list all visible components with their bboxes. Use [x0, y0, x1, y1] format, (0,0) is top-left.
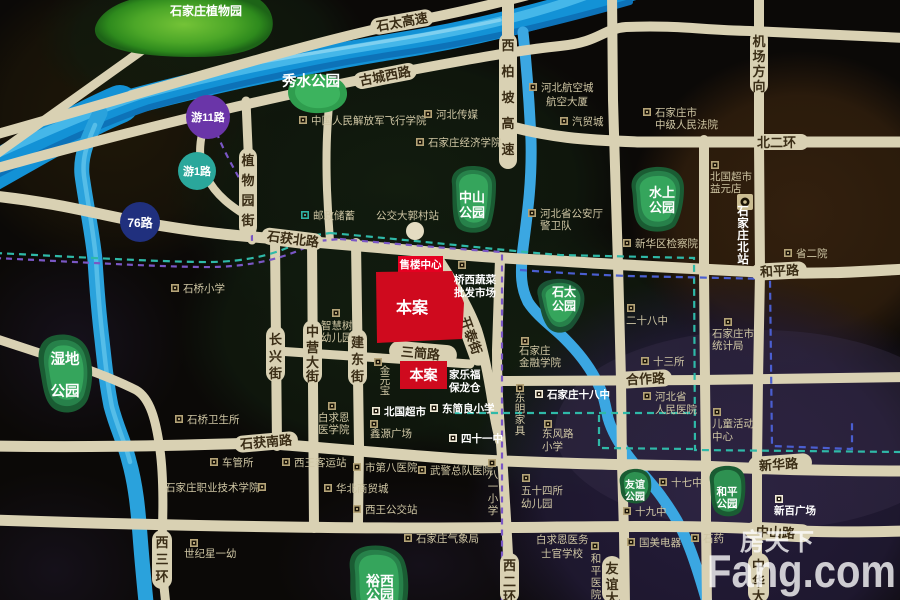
svg-text:湿地: 湿地 [51, 350, 80, 368]
svg-text:东简良小学: 东简良小学 [442, 402, 495, 415]
svg-text:植: 植 [240, 153, 254, 168]
svg-text:平: 平 [591, 565, 602, 577]
svg-text:航空大厦: 航空大厦 [546, 95, 588, 108]
svg-text:西王客运站: 西王客运站 [294, 456, 347, 469]
svg-text:76路: 76路 [127, 215, 153, 230]
svg-text:白求恩医务: 白求恩医务 [536, 533, 589, 546]
svg-text:十九中: 十九中 [635, 505, 667, 518]
svg-text:车管所: 车管所 [222, 456, 254, 469]
svg-text:场: 场 [752, 49, 765, 64]
svg-text:本案: 本案 [410, 367, 439, 383]
svg-text:营: 营 [306, 340, 319, 355]
svg-text:河北传媒: 河北传媒 [436, 108, 478, 121]
svg-text:桥西蔬菜: 桥西蔬菜 [454, 273, 496, 286]
svg-text:石家庄市: 石家庄市 [712, 327, 754, 340]
svg-text:Fang.com: Fang.com [707, 545, 896, 597]
svg-text:建: 建 [351, 335, 364, 350]
svg-text:新华路: 新华路 [759, 456, 800, 474]
svg-text:环: 环 [503, 589, 516, 600]
svg-text:中山: 中山 [459, 190, 485, 205]
svg-text:智慧树: 智慧树 [321, 319, 353, 332]
svg-text:合作路: 合作路 [626, 370, 667, 387]
svg-text:北国超市: 北国超市 [384, 405, 426, 418]
svg-text:速: 速 [501, 142, 514, 157]
svg-text:石家庄经济学院: 石家庄经济学院 [428, 136, 502, 149]
svg-text:三: 三 [155, 552, 168, 567]
svg-text:兴: 兴 [269, 349, 282, 364]
svg-text:中国人民解放军飞行学院: 中国人民解放军飞行学院 [311, 114, 427, 127]
svg-text:庄: 庄 [737, 228, 749, 242]
svg-text:谊: 谊 [605, 577, 618, 592]
svg-text:西: 西 [503, 558, 516, 573]
svg-text:石药: 石药 [703, 533, 724, 545]
svg-text:街: 街 [350, 369, 364, 384]
svg-text:方: 方 [752, 64, 765, 79]
svg-text:公园: 公园 [459, 205, 485, 220]
svg-text:士官学校: 士官学校 [541, 547, 583, 560]
svg-text:公园: 公园 [649, 200, 675, 215]
svg-text:统计局: 统计局 [712, 339, 744, 352]
svg-text:八: 八 [488, 469, 499, 481]
svg-text:街: 街 [305, 369, 319, 384]
svg-text:街: 街 [268, 366, 282, 381]
svg-text:公交大郭村站: 公交大郭村站 [376, 209, 439, 222]
svg-text:华北商贸城: 华北商贸城 [336, 482, 389, 495]
svg-text:石: 石 [736, 205, 749, 218]
svg-text:本案: 本案 [396, 298, 429, 317]
svg-text:保龙仓: 保龙仓 [448, 381, 481, 394]
svg-text:世纪星一幼: 世纪星一幼 [184, 547, 237, 560]
svg-text:西王公交站: 西王公交站 [365, 503, 418, 516]
svg-text:长: 长 [269, 332, 283, 347]
svg-text:五十四所: 五十四所 [521, 484, 563, 497]
svg-text:石家庄职业技术学院: 石家庄职业技术学院 [165, 481, 260, 494]
svg-text:大: 大 [605, 591, 618, 600]
svg-text:河北省公安厅: 河北省公安厅 [540, 207, 603, 220]
svg-text:游11路: 游11路 [191, 110, 226, 124]
svg-text:批发市场: 批发市场 [454, 286, 496, 299]
svg-text:四十一中: 四十一中 [461, 432, 503, 445]
svg-text:公园: 公园 [366, 587, 394, 600]
svg-text:西: 西 [155, 535, 168, 550]
svg-text:儿童活动: 儿童活动 [712, 417, 754, 430]
svg-text:金融学院: 金融学院 [519, 356, 561, 369]
svg-text:河北航空城: 河北航空城 [541, 81, 594, 94]
svg-text:石桥卫生所: 石桥卫生所 [187, 413, 240, 426]
svg-text:友: 友 [605, 561, 618, 576]
svg-text:省二院: 省二院 [796, 247, 828, 260]
svg-text:幼儿园: 幼儿园 [321, 331, 353, 344]
svg-text:石家庄市: 石家庄市 [655, 106, 697, 119]
svg-text:石家庄植物园: 石家庄植物园 [169, 3, 242, 18]
svg-text:公园: 公园 [552, 299, 576, 313]
svg-text:白求恩: 白求恩 [318, 411, 350, 424]
svg-text:人民医院: 人民医院 [655, 403, 697, 416]
svg-text:游1路: 游1路 [183, 164, 212, 178]
svg-text:医学院: 医学院 [318, 423, 350, 436]
svg-text:家乐福: 家乐福 [449, 368, 481, 381]
svg-text:中: 中 [306, 324, 319, 339]
svg-text:公园: 公园 [51, 383, 80, 400]
svg-text:二: 二 [503, 574, 516, 589]
svg-text:新华区检察院: 新华区检察院 [635, 237, 698, 250]
svg-text:公园: 公园 [717, 498, 738, 510]
svg-text:水上: 水上 [649, 185, 675, 200]
svg-text:警卫队: 警卫队 [540, 219, 572, 232]
svg-text:西: 西 [501, 38, 514, 53]
svg-text:小学: 小学 [542, 440, 563, 453]
svg-text:新百广场: 新百广场 [774, 504, 816, 517]
svg-text:石家庄十八中: 石家庄十八中 [546, 388, 610, 401]
svg-text:东: 东 [351, 352, 364, 367]
svg-text:公园: 公园 [625, 491, 645, 503]
svg-text:石家庄: 石家庄 [519, 344, 551, 357]
svg-text:鑫源广场: 鑫源广场 [370, 427, 412, 440]
svg-text:石桥小学: 石桥小学 [183, 282, 225, 295]
svg-text:柏: 柏 [501, 64, 514, 79]
svg-text:二十八中: 二十八中 [626, 314, 668, 327]
svg-text:市第八医院: 市第八医院 [365, 461, 418, 474]
svg-text:售楼中心: 售楼中心 [400, 258, 442, 271]
svg-text:坡: 坡 [501, 90, 515, 105]
svg-text:武警总队医院: 武警总队医院 [430, 464, 493, 477]
svg-text:大: 大 [306, 355, 319, 370]
svg-text:北二环: 北二环 [757, 135, 796, 150]
svg-text:邮政储蓄: 邮政储蓄 [313, 209, 355, 222]
svg-text:园: 园 [241, 193, 254, 208]
svg-text:向: 向 [752, 79, 765, 94]
svg-text:和: 和 [591, 553, 602, 565]
svg-text:北: 北 [737, 240, 749, 254]
svg-text:物: 物 [241, 173, 254, 188]
svg-text:和平: 和平 [716, 485, 738, 498]
svg-text:十三所: 十三所 [653, 355, 685, 368]
svg-text:中心: 中心 [712, 430, 733, 443]
svg-text:站: 站 [737, 252, 749, 266]
svg-text:医: 医 [591, 577, 602, 589]
svg-text:国美电器: 国美电器 [639, 536, 681, 549]
svg-text:街: 街 [240, 213, 254, 228]
svg-text:和平路: 和平路 [760, 262, 801, 279]
svg-text:家: 家 [737, 216, 749, 230]
svg-text:宝: 宝 [380, 384, 391, 397]
svg-text:石太: 石太 [551, 284, 577, 299]
svg-text:益元店: 益元店 [710, 182, 742, 195]
svg-text:环: 环 [155, 569, 168, 584]
svg-text:院: 院 [591, 588, 602, 600]
svg-text:一: 一 [488, 481, 499, 493]
svg-text:石家庄气象局: 石家庄气象局 [416, 532, 479, 545]
svg-text:学: 学 [488, 504, 499, 517]
svg-text:小: 小 [488, 493, 499, 505]
svg-text:秀水公园: 秀水公园 [281, 72, 340, 90]
svg-text:机: 机 [752, 34, 765, 49]
svg-text:友谊: 友谊 [625, 478, 645, 491]
svg-text:具: 具 [515, 425, 526, 437]
svg-text:高: 高 [501, 116, 514, 131]
svg-text:北国超市: 北国超市 [710, 170, 752, 183]
svg-text:东风路: 东风路 [542, 427, 574, 440]
svg-text:河北省: 河北省 [655, 390, 687, 403]
svg-text:中级人民法院: 中级人民法院 [655, 118, 718, 131]
svg-text:幼儿园: 幼儿园 [521, 497, 553, 510]
svg-text:十七中: 十七中 [671, 476, 703, 489]
svg-text:汽贸城: 汽贸城 [572, 115, 604, 128]
